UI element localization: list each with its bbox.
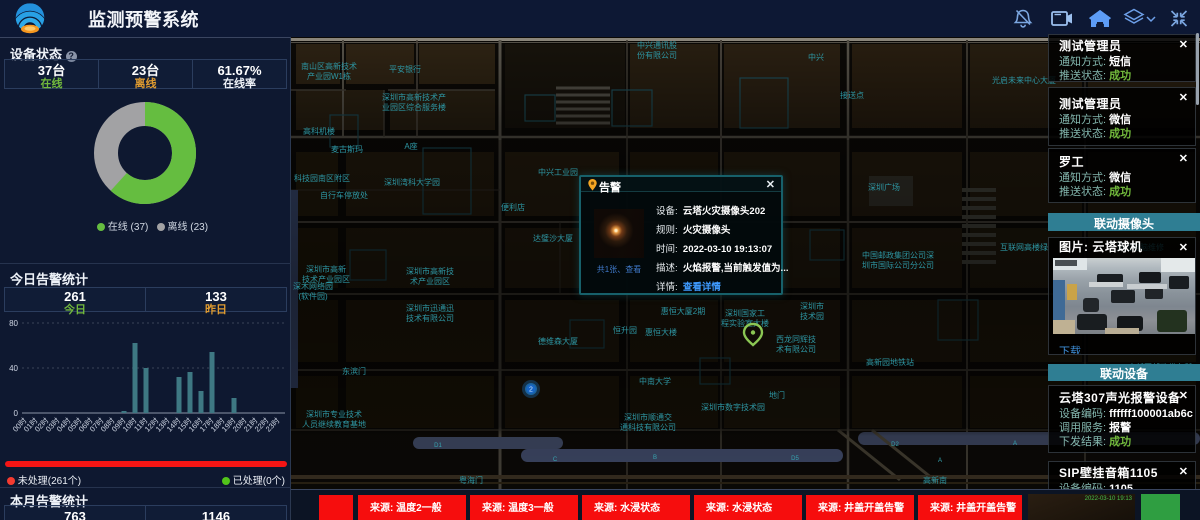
- svg-text:80: 80: [9, 319, 18, 328]
- svg-text:地门: 地门: [769, 390, 785, 400]
- svg-text:2: 2: [529, 387, 533, 394]
- svg-text:A座: A座: [404, 141, 417, 151]
- svg-text:D5: D5: [791, 456, 799, 462]
- svg-text:圳市国际公司分公司: 圳市国际公司分公司: [862, 260, 934, 270]
- svg-text:深圳广场: 深圳广场: [868, 182, 900, 192]
- svg-text:深圳市顺通交: 深圳市顺通交: [624, 412, 672, 422]
- svg-text:深圳国家工: 深圳国家工: [725, 308, 765, 318]
- svg-text:深圳市专业技术: 深圳市专业技术: [306, 409, 362, 419]
- svg-text:恒升园: 恒升园: [613, 325, 637, 335]
- svg-text:D2: D2: [891, 442, 899, 448]
- svg-text:A: A: [1013, 441, 1017, 447]
- svg-text:深圳湾科大学园: 深圳湾科大学园: [384, 177, 440, 187]
- svg-text:中兴: 中兴: [808, 52, 824, 62]
- svg-text:40: 40: [9, 364, 18, 373]
- svg-text:人员继续教育基地: 人员继续教育基地: [302, 419, 366, 429]
- svg-text:南山区高新技术: 南山区高新技术: [301, 61, 357, 71]
- svg-text:深木网络园: 深木网络园: [293, 281, 333, 291]
- svg-text:深圳市迅通迅: 深圳市迅通迅: [406, 303, 454, 313]
- svg-text:深圳市高新技术产: 深圳市高新技术产: [382, 92, 446, 102]
- svg-text:D1: D1: [434, 443, 442, 449]
- svg-text:科技园南区附区: 科技园南区附区: [294, 173, 350, 183]
- svg-text:麦古斯玛: 麦古斯玛: [331, 144, 363, 154]
- svg-text:德维森大厦: 德维森大厦: [538, 336, 578, 346]
- svg-text:惠恒大楼: 惠恒大楼: [645, 327, 677, 337]
- svg-text:深圳市数字技术园: 深圳市数字技术园: [701, 402, 765, 412]
- svg-text:0: 0: [14, 409, 19, 418]
- svg-text:深圳市高新: 深圳市高新: [306, 264, 346, 274]
- svg-text:达璧沙大厦: 达璧沙大厦: [533, 233, 573, 243]
- svg-text:接送点: 接送点: [840, 90, 864, 100]
- svg-text:术产业园区: 术产业园区: [410, 276, 450, 286]
- svg-text:东滨门: 东滨门: [342, 366, 366, 376]
- svg-text:粤海门: 粤海门: [459, 475, 483, 485]
- svg-text:份有限公司: 份有限公司: [637, 50, 677, 60]
- svg-text:23时: 23时: [263, 415, 282, 434]
- svg-text:C: C: [553, 457, 558, 463]
- svg-text:互联网高楼绿: 互联网高楼绿: [1000, 242, 1048, 252]
- svg-text:深圳市高新技: 深圳市高新技: [406, 266, 454, 276]
- svg-text:中兴工业园: 中兴工业园: [538, 167, 578, 177]
- svg-text:深圳市: 深圳市: [800, 301, 824, 311]
- svg-text:产业园W1栋: 产业园W1栋: [307, 71, 351, 81]
- svg-text:自行车停放处: 自行车停放处: [320, 190, 368, 200]
- svg-text:高新园地铁站: 高新园地铁站: [866, 357, 914, 367]
- svg-text:业园区综合服务楼: 业园区综合服务楼: [382, 102, 446, 112]
- svg-text:技术园: 技术园: [800, 311, 824, 321]
- svg-text:通科技有限公司: 通科技有限公司: [620, 422, 676, 432]
- svg-text:术有限公司: 术有限公司: [776, 344, 816, 354]
- svg-text:高新南: 高新南: [923, 475, 947, 485]
- svg-text:中兴通讯股: 中兴通讯股: [637, 40, 677, 50]
- svg-text:西龙同辉技: 西龙同辉技: [776, 334, 816, 344]
- svg-text:中国邮政集团公司深: 中国邮政集团公司深: [862, 250, 934, 260]
- svg-text:A: A: [938, 458, 942, 464]
- svg-text:平安银行: 平安银行: [389, 64, 421, 74]
- svg-text:中南大学: 中南大学: [639, 376, 671, 386]
- svg-text:高科机楼: 高科机楼: [303, 126, 335, 136]
- svg-text:(软件园): (软件园): [298, 291, 328, 301]
- svg-text:便利店: 便利店: [501, 202, 525, 212]
- svg-text:光启未来中心大厦: 光启未来中心大厦: [992, 75, 1056, 85]
- svg-text:B: B: [653, 455, 657, 461]
- svg-text:技术有限公司: 技术有限公司: [406, 313, 454, 323]
- svg-text:惠恒大厦2期: 惠恒大厦2期: [661, 306, 705, 316]
